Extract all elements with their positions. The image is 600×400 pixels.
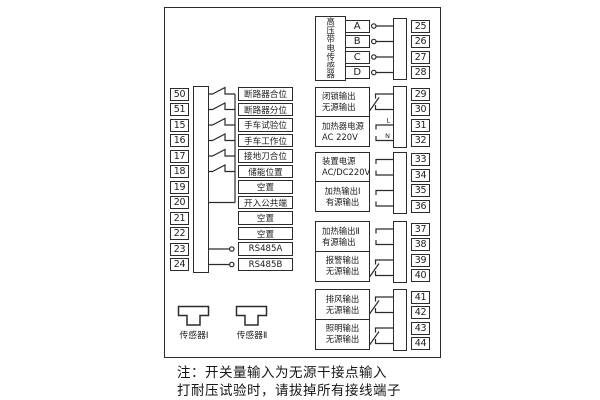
input-label: RS485B [238, 258, 293, 272]
input-label: RS485A [238, 242, 293, 256]
terminal-number: 50 [170, 88, 189, 101]
input-label: 手车工作位 [238, 134, 293, 148]
left-terminal-strip [193, 86, 209, 273]
terminal-number: 27 [411, 51, 430, 64]
wiring-lines-layer: L N [0, 0, 600, 400]
right-terminal-strip [393, 86, 407, 148]
terminal-number: 19 [170, 181, 189, 194]
input-label: 空置 [238, 227, 293, 241]
output-block-line2: 无源输出 [322, 102, 356, 113]
terminal-number: 21 [170, 212, 189, 225]
output-block-heater-supply: 加热器电源 AC 220V [315, 116, 370, 147]
output-block-biso: 闭锁输出 无源输出 [315, 87, 370, 118]
output-block-line1: 装置电源 [322, 156, 356, 167]
output-block-line2: AC/DC220V [322, 167, 370, 178]
terminal-number: 33 [411, 153, 430, 166]
wire-label-N: N [385, 132, 390, 140]
output-block-line1: 加热输出Ⅰ [325, 186, 361, 197]
terminal-number: 29 [411, 88, 430, 101]
terminal-number: 38 [411, 238, 430, 251]
output-block-line1: 加热器电源 [322, 121, 364, 132]
terminal-number: 26 [411, 35, 430, 48]
terminal-number: 35 [411, 184, 430, 197]
terminal-number: 34 [411, 169, 430, 182]
phase-box: B [345, 35, 370, 48]
terminal-number: 16 [170, 134, 189, 147]
right-terminal-strip [393, 152, 407, 214]
output-block-line2: 有源输出 [322, 237, 356, 248]
terminal-number: 39 [411, 254, 430, 267]
terminal-number: 18 [170, 165, 189, 178]
hv-sensor-title: 高压带电传感器 [315, 16, 346, 81]
phase-box: D [345, 66, 370, 79]
output-block-line2: 无源输出 [326, 305, 360, 316]
sensor-2-icon [237, 307, 267, 326]
output-block-line1: 报警输出 [326, 255, 360, 266]
output-block-lighting: 照明输出 无源输出 [315, 319, 370, 350]
terminal-number: 40 [411, 269, 430, 282]
terminal-wiring-diagram: L N 50 51 [0, 0, 600, 400]
output-block-line2: 有源输出 [326, 197, 360, 208]
terminal-number: 15 [170, 119, 189, 132]
terminal-number: 44 [411, 337, 430, 350]
terminal-number: 31 [411, 119, 430, 132]
phase-box: C [345, 51, 370, 64]
hv-sensor-wires [372, 24, 393, 75]
note-line-1: 注：开关量输入为无源干接点输入 [177, 361, 387, 381]
power-hook-wires [376, 125, 393, 245]
terminal-number: 24 [170, 258, 189, 271]
output-block-line2: AC 220V [322, 132, 358, 143]
sensor-symbols [179, 307, 267, 326]
terminal-number: 28 [411, 66, 430, 79]
output-block-line1: 加热输出Ⅱ [322, 226, 360, 237]
rs485-wires [209, 247, 234, 267]
terminal-number: 41 [411, 291, 430, 304]
terminal-number: 43 [411, 322, 430, 335]
output-block-line2: 无源输出 [326, 334, 360, 345]
output-block-device-supply: 装置电源 AC/DC220V [315, 152, 370, 183]
output-block-heat1: 加热输出Ⅰ 有源输出 [315, 181, 370, 212]
terminal-number: 37 [411, 223, 430, 236]
right-terminal-strip [393, 18, 407, 80]
output-block-alarm: 报警输出 无源输出 [315, 251, 370, 282]
input-label: 空置 [238, 211, 293, 225]
input-switch-wires [209, 88, 235, 203]
input-label: 储能位置 [238, 165, 293, 179]
right-terminal-strip [393, 289, 407, 351]
input-label: 接地刀合位 [238, 149, 293, 163]
sensor-2-label: 传感器Ⅱ [229, 328, 275, 341]
right-terminal-strip [393, 221, 407, 283]
note-line-2: 打耐压试验时，请拔掉所有接线端子 [177, 379, 401, 399]
terminal-number: 20 [170, 196, 189, 209]
wire-label-L: L [386, 117, 390, 125]
terminal-number: 32 [411, 134, 430, 147]
sensor-1-label: 传感器Ⅰ [171, 328, 217, 341]
phase-box: A [345, 20, 370, 33]
sensor-1-icon [179, 307, 209, 326]
terminal-number: 22 [170, 227, 189, 240]
terminal-number: 23 [170, 243, 189, 256]
terminal-number: 51 [170, 103, 189, 116]
output-block-line1: 闭锁输出 [322, 91, 356, 102]
terminal-number: 17 [170, 150, 189, 163]
input-label: 空置 [238, 180, 293, 194]
output-block-line2: 无源输出 [326, 266, 360, 277]
output-block-fan: 排风输出 无源输出 [315, 289, 370, 320]
input-label: 断路器分位 [238, 103, 293, 117]
terminal-number: 36 [411, 200, 430, 213]
output-block-line1: 照明输出 [326, 323, 360, 334]
input-label: 断路器合位 [238, 87, 293, 101]
input-label: 手车试验位 [238, 118, 293, 132]
terminal-number: 30 [411, 103, 430, 116]
terminal-number: 42 [411, 306, 430, 319]
output-block-heat2: 加热输出Ⅱ 有源输出 [315, 221, 370, 252]
terminal-number: 25 [411, 20, 430, 33]
input-label: 开入公共端 [238, 196, 293, 210]
output-block-line1: 排风输出 [326, 294, 360, 305]
